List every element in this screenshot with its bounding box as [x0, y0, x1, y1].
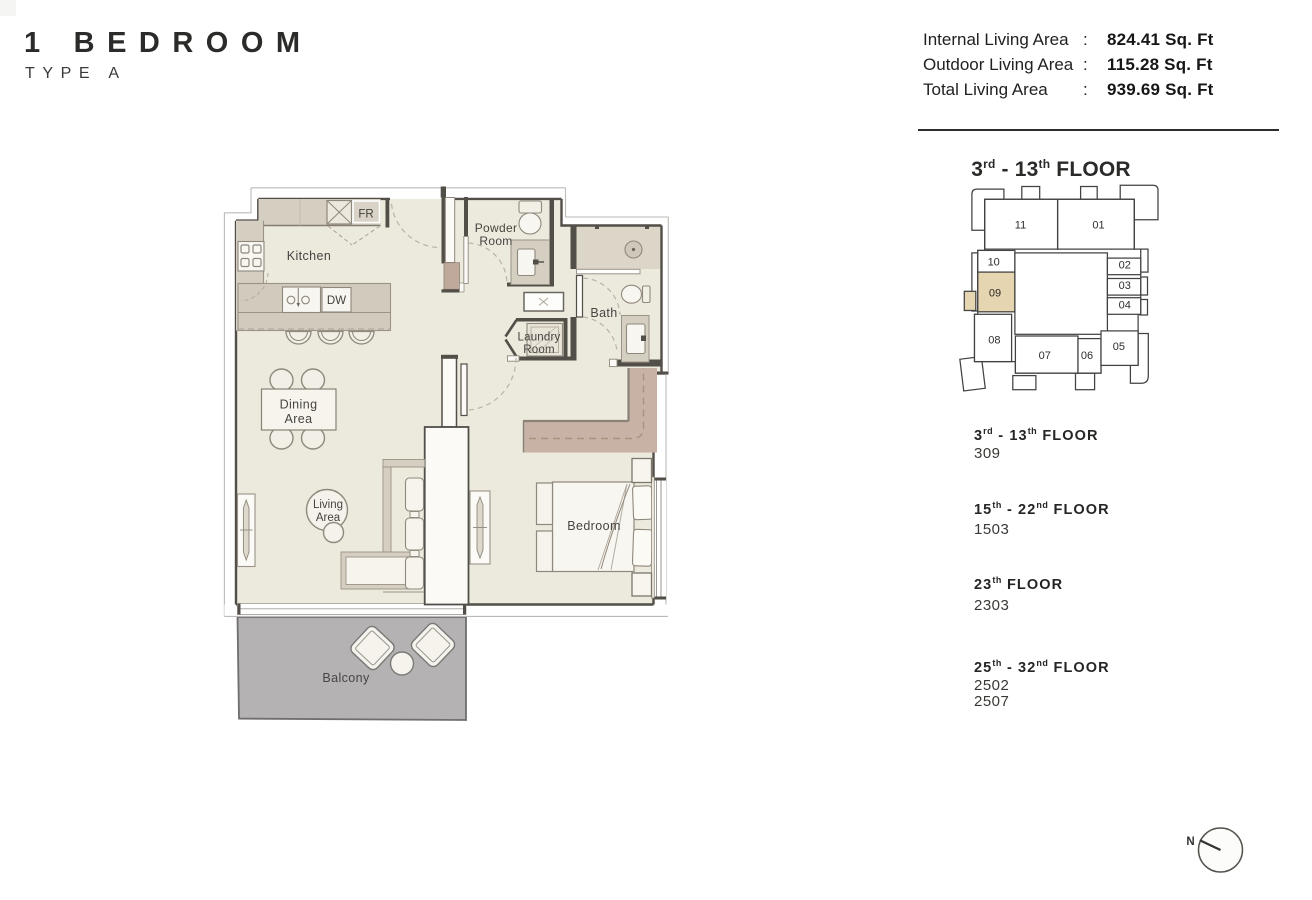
- svg-text:01: 01: [1092, 220, 1104, 232]
- svg-text:Powder: Powder: [475, 221, 518, 235]
- svg-text:11: 11: [1015, 220, 1026, 232]
- svg-text:Area: Area: [284, 412, 312, 426]
- svg-text:Kitchen: Kitchen: [287, 249, 332, 263]
- svg-text:Balcony: Balcony: [322, 671, 370, 685]
- svg-text:DW: DW: [327, 295, 346, 307]
- svg-text:04: 04: [1119, 300, 1131, 312]
- svg-text:10: 10: [988, 257, 1000, 269]
- svg-text:Area: Area: [316, 512, 341, 524]
- svg-text:05: 05: [1113, 341, 1125, 353]
- svg-text:N: N: [1186, 836, 1194, 848]
- svg-text:06: 06: [1081, 350, 1093, 362]
- svg-text:Bedroom: Bedroom: [567, 519, 621, 533]
- svg-text:Living: Living: [313, 499, 343, 511]
- svg-text:Laundry: Laundry: [518, 332, 561, 344]
- svg-text:Dining: Dining: [280, 398, 318, 412]
- svg-text:Room: Room: [523, 344, 554, 356]
- svg-text:FR: FR: [358, 209, 373, 221]
- svg-text:Bath: Bath: [590, 306, 617, 320]
- svg-text:03: 03: [1119, 280, 1131, 292]
- svg-text:07: 07: [1039, 350, 1051, 362]
- svg-text:Room: Room: [479, 234, 512, 248]
- svg-text:09: 09: [989, 288, 1001, 300]
- svg-text:02: 02: [1119, 259, 1131, 271]
- svg-text:08: 08: [988, 335, 1000, 347]
